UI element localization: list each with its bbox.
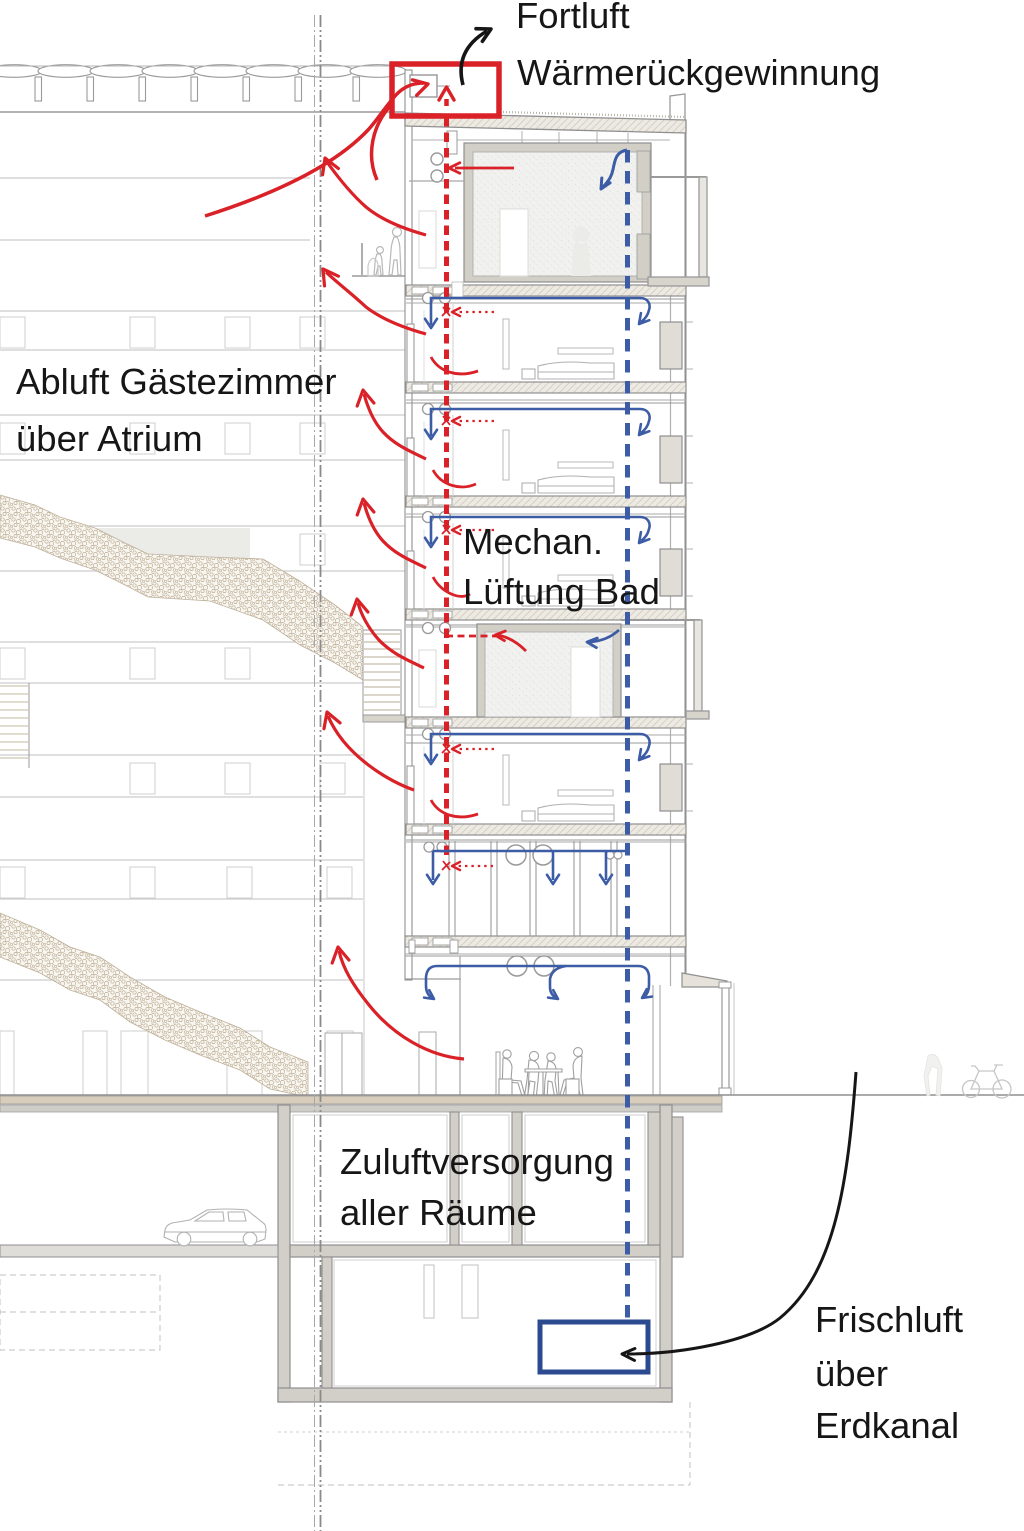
svg-text:Mechan.: Mechan. — [463, 521, 603, 562]
svg-text:Erdkanal: Erdkanal — [815, 1405, 959, 1446]
svg-text:Frischluft: Frischluft — [815, 1299, 963, 1340]
svg-text:Zuluftversorgung: Zuluftversorgung — [340, 1141, 614, 1182]
svg-text:Fortluft: Fortluft — [516, 0, 630, 36]
svg-text:über Atrium: über Atrium — [16, 418, 203, 459]
svg-text:über: über — [815, 1353, 888, 1394]
svg-text:Abluft Gästezimmer: Abluft Gästezimmer — [16, 361, 336, 402]
svg-text:aller Räume: aller Räume — [340, 1192, 537, 1233]
svg-text:Lüftung Bad: Lüftung Bad — [463, 571, 660, 612]
svg-text:Wärmerückgewinnung: Wärmerückgewinnung — [517, 52, 880, 93]
